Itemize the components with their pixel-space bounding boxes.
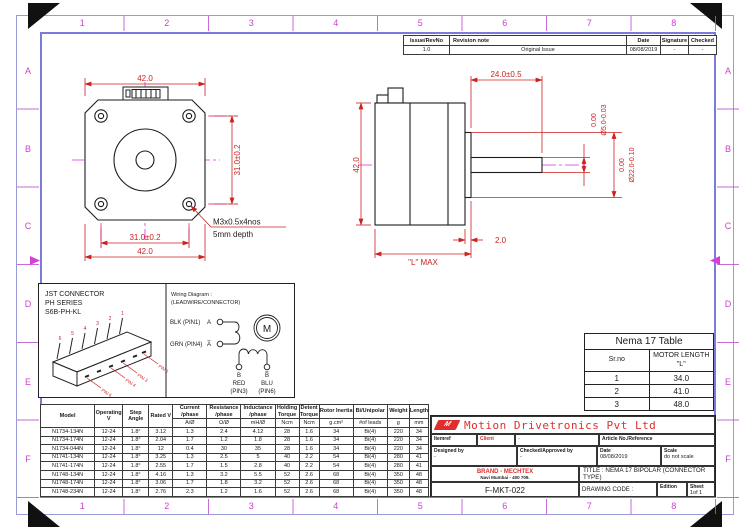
spec-cell: 2.76 <box>149 488 173 497</box>
nema-cell: 48.0 <box>649 398 714 411</box>
dim-hole-vertical: 31.0±0.2 <box>233 144 242 176</box>
revision-header-row: Issue/RevNo Revision note Date Signature… <box>404 36 717 46</box>
connector-box: JST CONNECTOR PH SERIES S6B-PH-KL 6 <box>38 283 295 398</box>
spec-cell: 1.3 <box>173 453 207 462</box>
dim-width-bottom: 42.0 <box>137 247 153 256</box>
drawing-sheet: 12345678 12345678 ABCDEF ABCDEF Issue/Re… <box>0 0 750 530</box>
spec-cell: N1734-174N <box>41 436 95 445</box>
table-row: N1748-174N12-241.8°3.061.71.83.2522.668B… <box>41 479 429 488</box>
spec-cell: 350 <box>387 470 409 479</box>
spec-cell: 350 <box>387 479 409 488</box>
pin-number: 3 <box>96 321 99 327</box>
spec-cell: 12-24 <box>95 445 123 454</box>
spec-cell: 30 <box>207 445 241 454</box>
spec-cell: 2.6 <box>299 470 319 479</box>
pin-leader-label: PIN 6 <box>100 388 113 397</box>
spec-header: Rotor Inertia <box>319 405 353 419</box>
spec-cell: 220 <box>387 445 409 454</box>
spec-cell: 28 <box>275 445 299 454</box>
spec-cell: 1.8° <box>123 462 149 471</box>
ruler-number: 3 <box>209 16 294 31</box>
spec-cell: 12-24 <box>95 453 123 462</box>
nema-title-row: Nema 17 Table <box>585 334 714 350</box>
spec-cell: 34 <box>409 436 428 445</box>
title-block: M Motion Drivetronics Pvt Ltd Itemref Cl… <box>430 415 716 497</box>
spec-cell: 1.2 <box>207 436 241 445</box>
connector-title-line1: JST CONNECTOR <box>45 291 104 298</box>
ruler-left: ABCDEF <box>17 32 39 498</box>
ruler-number: 5 <box>378 499 463 514</box>
thread-callout-line2: 5mm depth <box>213 230 253 239</box>
designed-by-cell: Designed by - <box>431 446 517 466</box>
dim-boss-thickness: 2.0 <box>495 236 507 245</box>
spec-cell: N1741-134N <box>41 453 95 462</box>
ruler-number: 7 <box>547 499 632 514</box>
ruler-letter: A <box>17 32 39 110</box>
pin-number: 1 <box>121 311 124 317</box>
document-code: F-MKT-022 <box>431 482 579 497</box>
ruler-letter: F <box>717 420 739 498</box>
pin-leader-label: PIN 1 <box>157 364 170 375</box>
spec-header: Inductance /phase <box>241 405 275 419</box>
table-row: 241.0 <box>585 385 714 398</box>
spec-cell: Bi(4) <box>353 488 387 497</box>
spec-cell: 52 <box>275 479 299 488</box>
client-value: - <box>515 434 599 446</box>
wiring-title-line2: (LEADWIRE/CONNECTOR) <box>171 300 240 306</box>
company-name: Motion Drivetronics Pvt Ltd <box>464 419 656 432</box>
spec-cell: 3.06 <box>149 479 173 488</box>
revision-cell: 1.0 <box>404 46 450 55</box>
spec-cell: 68 <box>319 479 353 488</box>
pin-number: 6 <box>59 336 62 342</box>
table-row: N1734-174N12-241.8°2.041.71.21.8281.634B… <box>41 436 429 445</box>
thread-callout: M3x0.5x4nos 5mm depth <box>213 218 261 240</box>
spec-cell: 48 <box>409 479 428 488</box>
spec-cell: Bi(4) <box>353 436 387 445</box>
spec-cell: 28 <box>275 436 299 445</box>
spec-cell: 280 <box>387 453 409 462</box>
ruler-number: 1 <box>40 499 125 514</box>
article-label: Article No./Reference <box>599 434 715 446</box>
spec-unit: A/Ø <box>173 419 207 428</box>
pin-leader-label: PIN 3 <box>136 373 149 384</box>
ruler-letter: A <box>717 32 739 110</box>
spec-cell: 1.6 <box>241 488 275 497</box>
scale-cell: Scale do not scale <box>661 446 715 466</box>
table-row: N1734-134N12-241.8°3.121.32.44.12281.634… <box>41 428 429 437</box>
spec-cell: Bi(4) <box>353 453 387 462</box>
ruler-number: 4 <box>294 16 379 31</box>
spec-cell: 2.8 <box>241 462 275 471</box>
date-value: 08/08/2019 <box>600 454 658 460</box>
nema-table-title: Nema 17 Table <box>585 334 714 350</box>
spec-cell: 1.6 <box>299 445 319 454</box>
drawing-title: TITLE : NEMA 17 BIPOLAR (CONNECTOR TYPE) <box>579 466 715 482</box>
spec-cell: 2.4 <box>207 428 241 437</box>
wiring-title: Wiring Diagram : (LEADWIRE/CONNECTOR) <box>171 292 240 306</box>
revision-cell: - <box>689 46 717 55</box>
spec-header: Current /phase <box>173 405 207 419</box>
connector-top-view <box>123 87 168 100</box>
spec-unit: g <box>387 419 409 428</box>
spec-unit: Ncm <box>299 419 319 428</box>
ruler-letter: D <box>717 265 739 343</box>
spec-cell: 41 <box>409 462 428 471</box>
motor-shaft <box>471 158 542 173</box>
spec-cell: 34 <box>319 445 353 454</box>
ruler-letter: B <box>17 110 39 188</box>
ruler-letter: C <box>17 187 39 265</box>
spec-cell: 40 <box>275 462 299 471</box>
pin-leader-label: PIN 4 <box>124 378 137 389</box>
nema-table-body: 134.0241.0348.0 <box>585 372 714 411</box>
side-view-drawing: 24.0±0.5 0.00 Ø5.0-0.03 0.00 Ø22.0-0.10 … <box>350 58 650 270</box>
spec-cell: 52 <box>275 470 299 479</box>
spec-cell: 5.5 <box>241 470 275 479</box>
spec-header: Resistance /phase <box>207 405 241 419</box>
spec-cell: 34 <box>409 445 428 454</box>
spec-cell: 12-24 <box>95 462 123 471</box>
spec-cell: 1.8° <box>123 488 149 497</box>
ruler-number: 8 <box>632 499 717 514</box>
spec-table: Model Operating V Step Angle Rated V Cur… <box>40 404 429 497</box>
nema-header-row: Sr.no MOTOR LENGTH "L" <box>585 350 714 372</box>
spec-cell: Bi(4) <box>353 470 387 479</box>
connector-title: JST CONNECTOR PH SERIES S6B-PH-KL <box>45 291 104 316</box>
lead-b-wire: RED <box>233 381 246 387</box>
nema-cell: 41.0 <box>649 385 714 398</box>
spec-cell: 2.55 <box>149 462 173 471</box>
drawing-code-label: DRAWING CODE : <box>579 482 657 497</box>
ruler-letter: C <box>717 187 739 265</box>
spec-cell: 28 <box>275 428 299 437</box>
table-row: 348.0 <box>585 398 714 411</box>
spec-cell: 68 <box>319 470 353 479</box>
spec-cell: 1.8° <box>123 470 149 479</box>
ruler-number: 2 <box>125 499 210 514</box>
brand-cell: BRAND - MECHTEX Navi Mumbai - 400 709. <box>431 466 579 482</box>
lead-bbar-wire: BLU <box>261 381 273 387</box>
spec-header: Model <box>41 405 95 428</box>
connector-title-line2: PH SERIES <box>45 300 83 307</box>
terminal-b: B <box>237 373 241 379</box>
wiring-leads: BLK (PIN1) A GRN (PIN4) A̅ <box>170 320 211 348</box>
front-view-drawing: 42.0 31.0±0.2 31.0±0.2 42.0 M3x0.5x4nos … <box>60 64 320 264</box>
terminal-bbar: B̅ <box>265 372 269 379</box>
spec-cell: 12-24 <box>95 488 123 497</box>
spec-cell: 3.25 <box>149 453 173 462</box>
spec-cell: 220 <box>387 428 409 437</box>
spec-cell: 1.7 <box>173 462 207 471</box>
lead-bbar-pin: (PIN6) <box>258 389 275 395</box>
spec-cell: Bi(4) <box>353 462 387 471</box>
spec-cell: 2.3 <box>173 488 207 497</box>
ruler-letter: E <box>717 343 739 421</box>
spec-cell: 1.8 <box>207 479 241 488</box>
spec-cell: 1.3 <box>173 428 207 437</box>
table-row: 134.0 <box>585 372 714 385</box>
boss-dia: Ø22.0-0.10 <box>629 147 636 182</box>
spec-cell: N1748-234N <box>41 488 95 497</box>
company-logo: M <box>434 420 461 430</box>
spec-header: Weight <box>387 405 409 419</box>
ruler-right: ABCDEF <box>717 32 739 498</box>
ruler-number: 6 <box>463 499 548 514</box>
lead-a-terminal: A <box>207 320 211 326</box>
spec-cell: 34 <box>409 428 428 437</box>
lead-b-pin: (PIN3) <box>230 389 247 395</box>
table-row: 1.0Original Issue08/08/2019-- <box>404 46 717 55</box>
spec-cell: Bi(4) <box>353 479 387 488</box>
ruler-number: 5 <box>378 16 463 31</box>
dim-width-top: 42.0 <box>137 74 153 83</box>
table-row: N1748-134N12-241.8°4.161.33.25.5522.668B… <box>41 470 429 479</box>
ruler-number: 8 <box>632 16 717 31</box>
nema-cell: 2 <box>585 385 650 398</box>
motor-face <box>85 100 205 220</box>
spec-cell: N1734-044N <box>41 445 95 454</box>
spec-unit: Ω/Ø <box>207 419 241 428</box>
spec-cell: 3.12 <box>149 428 173 437</box>
spec-cell: 1.5 <box>207 462 241 471</box>
wiring-b-labels: B B̅ RED BLU (PIN3) (PIN6) <box>230 372 275 395</box>
spec-cell: 48 <box>409 470 428 479</box>
spec-cell: 12-24 <box>95 470 123 479</box>
ruler-number: 2 <box>125 16 210 31</box>
ruler-top: 12345678 <box>40 16 716 31</box>
boss-dia-tol: 0.00 <box>619 158 626 172</box>
dim-hole-horizontal: 31.0±0.2 <box>129 233 161 242</box>
spec-cell: 12 <box>149 445 173 454</box>
revision-cell: - <box>661 46 689 55</box>
nema-cell: 1 <box>585 372 650 385</box>
table-row: N1741-134N12-241.8°3.251.32.55402.254Bi(… <box>41 453 429 462</box>
revision-table-body: 1.0Original Issue08/08/2019-- <box>404 46 717 55</box>
revision-header: Checked <box>689 36 717 46</box>
spec-cell: 2.04 <box>149 436 173 445</box>
checked-by-value: - <box>520 454 594 460</box>
motor-body <box>375 88 542 225</box>
ruler-letter: F <box>17 420 39 498</box>
shaft-dia: Ø5.0-0.03 <box>601 104 608 135</box>
designed-by-value: - <box>434 454 514 460</box>
ruler-letter: E <box>17 343 39 421</box>
spec-cell: 4.16 <box>149 470 173 479</box>
lead-abar-wire: GRN (PIN4) <box>170 342 202 348</box>
spec-cell: N1748-134N <box>41 470 95 479</box>
spec-cell: 54 <box>319 462 353 471</box>
ruler-letter: B <box>717 110 739 188</box>
spec-cell: 1.7 <box>173 479 207 488</box>
ruler-number: 4 <box>294 499 379 514</box>
ruler-number: 3 <box>209 499 294 514</box>
pilot-boss <box>465 133 471 198</box>
spec-cell: 12-24 <box>95 479 123 488</box>
wiring-title-line1: Wiring Diagram : <box>171 292 212 298</box>
itemref-label: Itemref <box>431 434 477 446</box>
ruler-letter: D <box>17 265 39 343</box>
spec-cell: 1.8° <box>123 479 149 488</box>
shaft-dia-tol: 0.00 <box>591 113 598 127</box>
scale-value: do not scale <box>664 454 712 460</box>
spec-cell: 52 <box>275 488 299 497</box>
revision-header: Issue/RevNo <box>404 36 450 46</box>
spec-cell: 2.6 <box>299 479 319 488</box>
spec-cell: 2.6 <box>299 488 319 497</box>
table-row: N1741-174N12-241.8°2.551.71.52.8402.254B… <box>41 462 429 471</box>
spec-cell: 220 <box>387 436 409 445</box>
spec-cell: 350 <box>387 488 409 497</box>
revision-cell: 08/08/2019 <box>627 46 661 55</box>
spec-cell: 1.8 <box>241 436 275 445</box>
spec-cell: 48 <box>409 488 428 497</box>
spec-header: Rated V <box>149 405 173 428</box>
spec-cell: 40 <box>275 453 299 462</box>
spec-unit: Ncm <box>275 419 299 428</box>
spec-cell: 1.7 <box>173 436 207 445</box>
spec-header-row: Model Operating V Step Angle Rated V Cur… <box>41 405 429 419</box>
spec-cell: 1.6 <box>299 428 319 437</box>
ruler-number: 1 <box>40 16 125 31</box>
dim-height: 42.0 <box>352 157 361 173</box>
spec-cell: 280 <box>387 462 409 471</box>
spec-header: Detent Torque <box>299 405 319 419</box>
revision-header: Revision note <box>450 36 627 46</box>
spec-cell: 12-24 <box>95 436 123 445</box>
spec-table-body: N1734-134N12-241.8°3.121.32.44.12281.634… <box>41 428 429 497</box>
brand-address: Navi Mumbai - 400 709. <box>434 475 576 480</box>
spec-cell: 0.4 <box>173 445 207 454</box>
spec-cell: 34 <box>319 428 353 437</box>
motor-symbol: M <box>263 324 271 335</box>
spec-cell: 12-24 <box>95 428 123 437</box>
spec-cell: 1.8° <box>123 428 149 437</box>
thread-callout-line1: M3x0.5x4nos <box>213 218 261 227</box>
ruler-bottom: 12345678 <box>40 499 716 514</box>
spec-cell: 54 <box>319 453 353 462</box>
spec-cell: 34 <box>319 436 353 445</box>
table-row: N1734-044N12-241.8°120.43035281.634Bi(4)… <box>41 445 429 454</box>
pin-number: 5 <box>71 331 74 337</box>
connector-wiring-svg: JST CONNECTOR PH SERIES S6B-PH-KL 6 <box>39 284 294 397</box>
pin-number: 4 <box>84 326 87 332</box>
pin-number: 2 <box>109 316 112 322</box>
spec-header: Holding Torque <box>275 405 299 419</box>
revision-header: Date <box>627 36 661 46</box>
nema-cell: 3 <box>585 398 650 411</box>
nema-17-table: Nema 17 Table Sr.no MOTOR LENGTH "L" 134… <box>584 333 714 411</box>
sheet-cell: Sheet 1of 1 <box>687 482 715 497</box>
company-header: M Motion Drivetronics Pvt Ltd <box>431 416 715 434</box>
nema-header: Sr.no <box>585 350 650 372</box>
ruler-number: 7 <box>547 16 632 31</box>
spec-cell: 4.12 <box>241 428 275 437</box>
spec-cell: 41 <box>409 453 428 462</box>
client-label: Client <box>477 434 515 446</box>
spec-cell: 1.8° <box>123 436 149 445</box>
revision-cell: Original Issue <box>450 46 627 55</box>
spec-header: Length <box>409 405 428 419</box>
nema-header: MOTOR LENGTH "L" <box>649 350 714 372</box>
table-row: N1748-234N12-241.8°2.762.31.21.6522.668B… <box>41 488 429 497</box>
spec-cell: 1.2 <box>207 488 241 497</box>
edition-cell: Edition <box>657 482 687 497</box>
spec-header: Step Angle <box>123 405 149 428</box>
spec-cell: 1.8° <box>123 453 149 462</box>
dim-shaft-length: 24.0±0.5 <box>490 70 522 79</box>
dim-body-length: "L" MAX <box>408 258 438 267</box>
spec-cell: N1734-134N <box>41 428 95 437</box>
spec-cell: 3.2 <box>207 470 241 479</box>
spec-cell: 35 <box>241 445 275 454</box>
spec-cell: 68 <box>319 488 353 497</box>
spec-cell: 1.8° <box>123 445 149 454</box>
spec-cell: Bi(4) <box>353 428 387 437</box>
lead-a-wire: BLK (PIN1) <box>170 320 200 326</box>
revision-table: Issue/RevNo Revision note Date Signature… <box>403 35 717 55</box>
connector-title-line3: S6B-PH-KL <box>45 309 81 316</box>
spec-cell: 5 <box>241 453 275 462</box>
date-cell: Date 08/08/2019 <box>597 446 661 466</box>
spec-cell: 2.2 <box>299 453 319 462</box>
revision-header: Signature <box>661 36 689 46</box>
ruler-number: 6 <box>463 16 548 31</box>
spec-cell: N1741-174N <box>41 462 95 471</box>
spec-cell: 3.2 <box>241 479 275 488</box>
nema-cell: 34.0 <box>649 372 714 385</box>
spec-cell: N1748-174N <box>41 479 95 488</box>
sheet-value: 1of 1 <box>690 490 712 496</box>
spec-cell: 2.5 <box>207 453 241 462</box>
checked-by-cell: Checked/Approved by - <box>517 446 597 466</box>
spec-header: Bi/Unipolar <box>353 405 387 419</box>
spec-header: Operating V <box>95 405 123 428</box>
spec-cell: Bi(4) <box>353 445 387 454</box>
spec-unit: #of leads <box>353 419 387 428</box>
lead-abar-terminal: A̅ <box>207 341 211 348</box>
spec-cell: 1.3 <box>173 470 207 479</box>
spec-unit: mm <box>409 419 428 428</box>
spec-cell: 1.6 <box>299 436 319 445</box>
spec-unit: mH/Ø <box>241 419 275 428</box>
spec-unit: g.cm² <box>319 419 353 428</box>
spec-cell: 2.2 <box>299 462 319 471</box>
